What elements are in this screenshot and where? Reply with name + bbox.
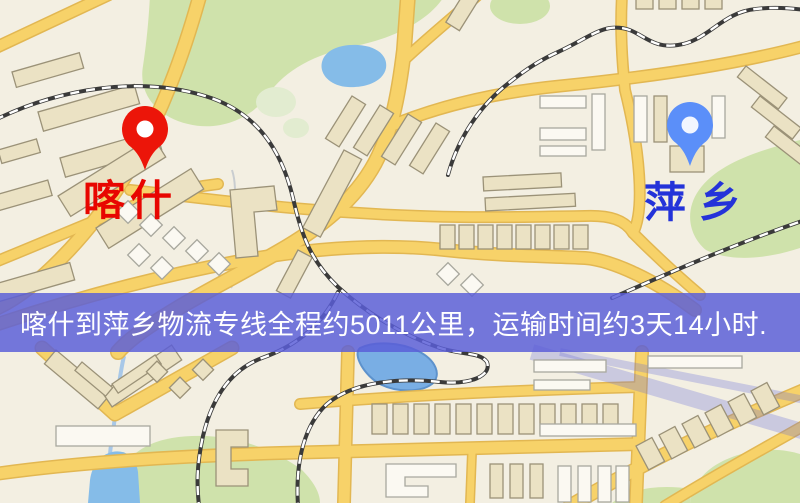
map-container: 喀什 萍乡 喀什到萍乡物流专线全程约5011公里，运输时间约3天14小时.	[0, 0, 800, 503]
map-canvas	[0, 0, 800, 503]
route-info-text: 喀什到萍乡物流专线全程约5011公里，运输时间约3天14小时.	[0, 303, 767, 342]
city-label-kashgar: 喀什	[83, 180, 177, 222]
city-label-pingxiang: 萍乡	[644, 182, 754, 224]
route-info-banner: 喀什到萍乡物流专线全程约5011公里，运输时间约3天14小时.	[0, 293, 800, 352]
